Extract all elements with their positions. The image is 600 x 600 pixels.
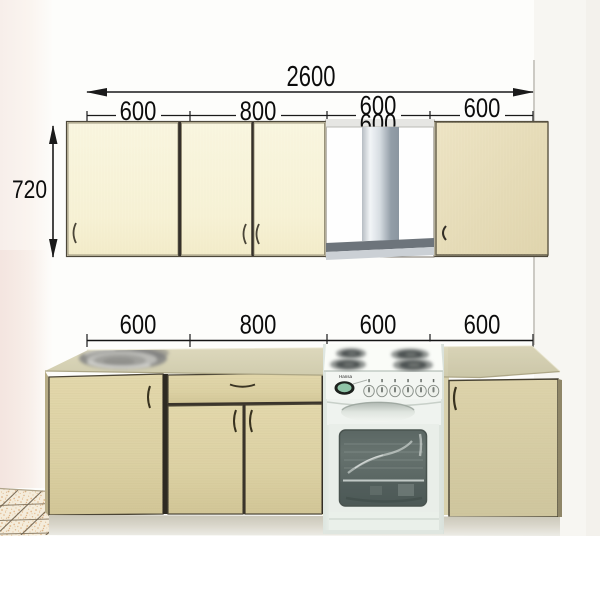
svg-text:Hansa: Hansa bbox=[339, 374, 353, 379]
svg-text:2600: 2600 bbox=[287, 61, 336, 92]
svg-text:720: 720 bbox=[12, 175, 47, 203]
svg-text:600: 600 bbox=[464, 94, 501, 123]
svg-text:800: 800 bbox=[240, 311, 277, 340]
svg-text:600: 600 bbox=[464, 311, 501, 340]
svg-text:600: 600 bbox=[360, 311, 397, 340]
svg-text:600: 600 bbox=[120, 311, 157, 340]
